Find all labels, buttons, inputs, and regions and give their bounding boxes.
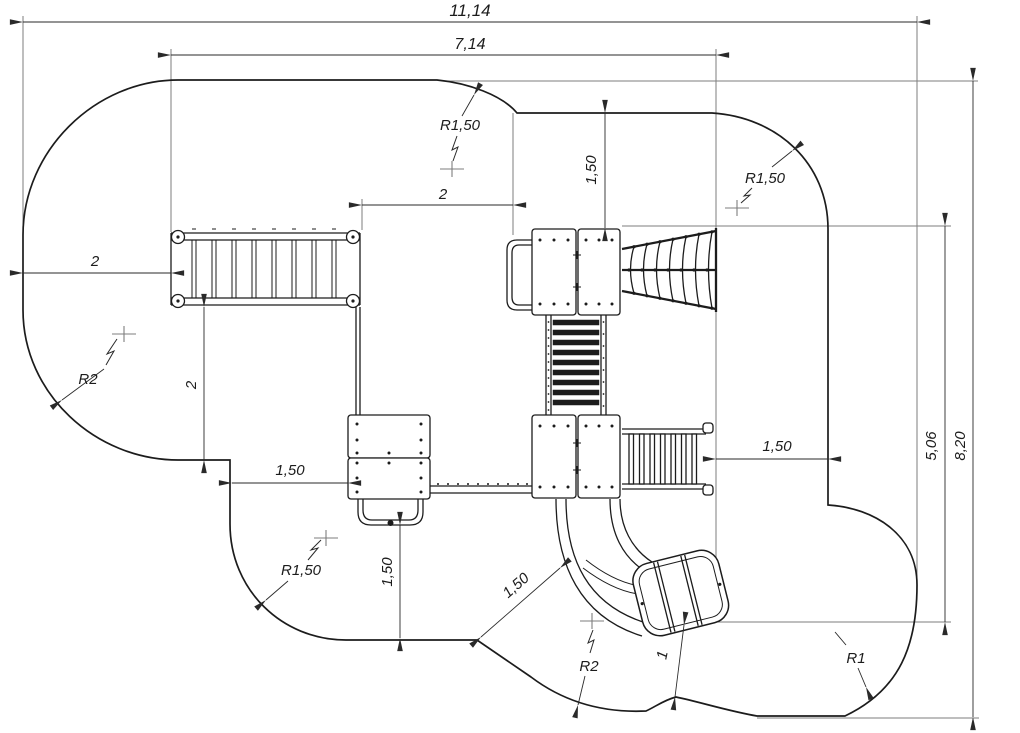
dimension-lines — [23, 22, 973, 717]
label-radius-top-center: R1,50 — [440, 117, 481, 134]
label-radius-top-left: R2 — [78, 371, 98, 388]
center-mark-bottom-center — [580, 613, 604, 629]
label-inner-height: 5,06 — [923, 431, 940, 461]
label-overall-height: 8,20 — [952, 431, 969, 461]
center-mark-top-left — [112, 326, 136, 342]
support-pole — [356, 307, 360, 415]
walkway-beam — [430, 483, 532, 493]
label-bottom-left-clearance: 1,50 — [275, 462, 305, 479]
extension-lines — [23, 16, 979, 718]
dimension-labels: 11,14 7,14 2 1,50 R1,50 R1,50 2 R2 2 1,5… — [78, 1, 969, 675]
right-entry-steps — [622, 423, 713, 495]
top-tower-platforms — [507, 229, 620, 315]
leader-r150-top-right — [772, 151, 792, 167]
label-right-clearance: 1,50 — [762, 438, 792, 455]
net-climber — [622, 228, 716, 312]
leader-r150-top-center — [462, 95, 474, 116]
leader-r2-bottom-center — [578, 676, 585, 705]
bottom-tower-platforms — [532, 415, 620, 498]
label-radius-bottom-center: R2 — [579, 658, 599, 675]
leader-r1-tail — [835, 632, 846, 645]
label-overall-width: 11,14 — [449, 1, 490, 20]
dim-slide-exit-clearance — [675, 625, 684, 697]
label-left-mid-clearance: 2 — [183, 380, 200, 390]
label-radius-bottom-left: R1,50 — [281, 562, 322, 579]
playground-plan-svg: 11,14 7,14 2 1,50 R1,50 R1,50 2 R2 2 1,5… — [0, 0, 1020, 733]
label-left-clearance: 2 — [90, 253, 100, 270]
label-inner-width: 7,14 — [454, 36, 485, 53]
leader-r150-bottom-left — [266, 581, 288, 600]
stairway — [546, 315, 606, 415]
label-bottom-vertical-clearance: 1,50 — [379, 557, 396, 587]
handrail-end-top — [703, 423, 713, 433]
label-slide-exit-clearance: 1 — [653, 649, 671, 661]
center-mark-top-center — [440, 161, 464, 177]
center-mark-top-right — [725, 200, 749, 216]
label-radius-top-right: R1,50 — [745, 170, 786, 187]
slide-brace — [583, 560, 640, 594]
slide-exit — [629, 546, 732, 639]
label-top-offset: 2 — [438, 186, 448, 203]
left-platform — [348, 415, 430, 526]
leader-r1-bottom-right — [858, 668, 866, 687]
handrail-end-bottom — [703, 485, 713, 495]
label-top-clearance-vertical: 1,50 — [583, 155, 600, 185]
cad-drawing-canvas: 11,14 7,14 2 1,50 R1,50 R1,50 2 R2 2 1,5… — [0, 0, 1020, 733]
label-radius-bottom-right: R1 — [846, 650, 865, 667]
label-slide-diagonal-clearance: 1,50 — [499, 569, 533, 601]
curved-slide — [556, 499, 732, 640]
grab-handle — [507, 240, 532, 310]
